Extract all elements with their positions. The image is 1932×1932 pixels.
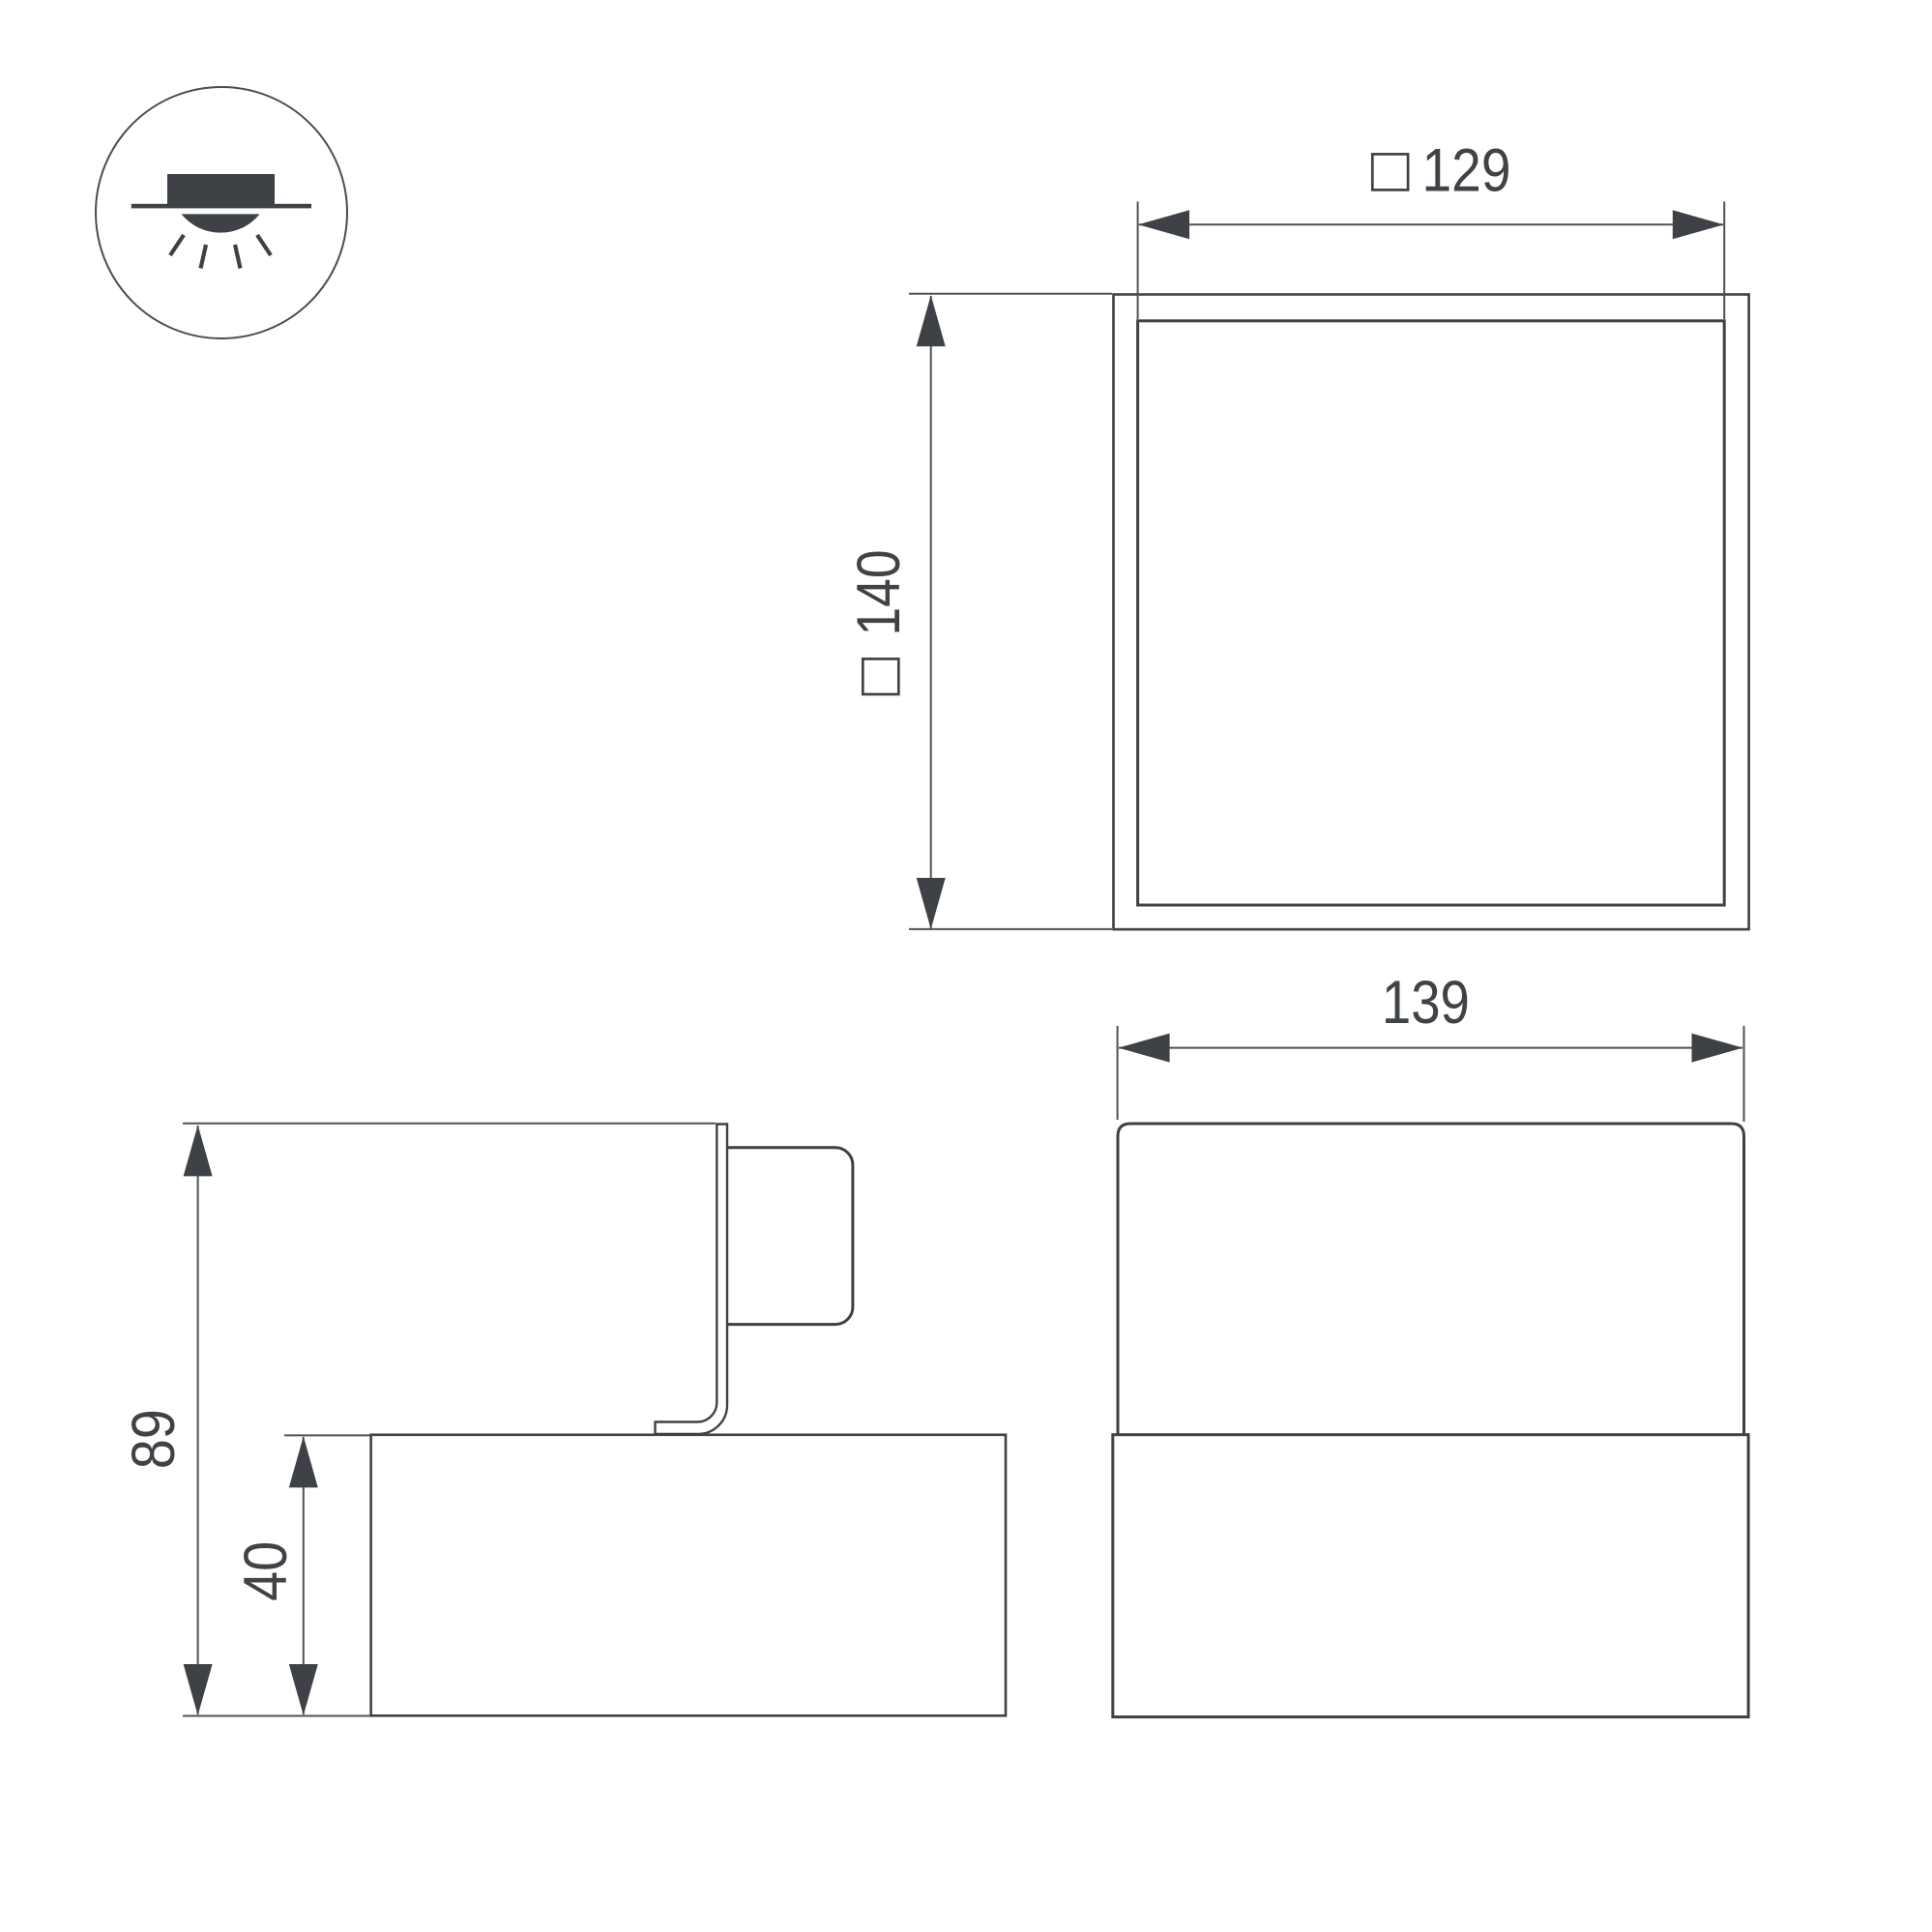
svg-text:139: 139 xyxy=(1382,969,1470,1037)
svg-text:129: 129 xyxy=(1422,137,1511,205)
svg-text:89: 89 xyxy=(120,1409,188,1469)
svg-text:40: 40 xyxy=(232,1541,300,1601)
svg-text:140: 140 xyxy=(845,550,913,636)
